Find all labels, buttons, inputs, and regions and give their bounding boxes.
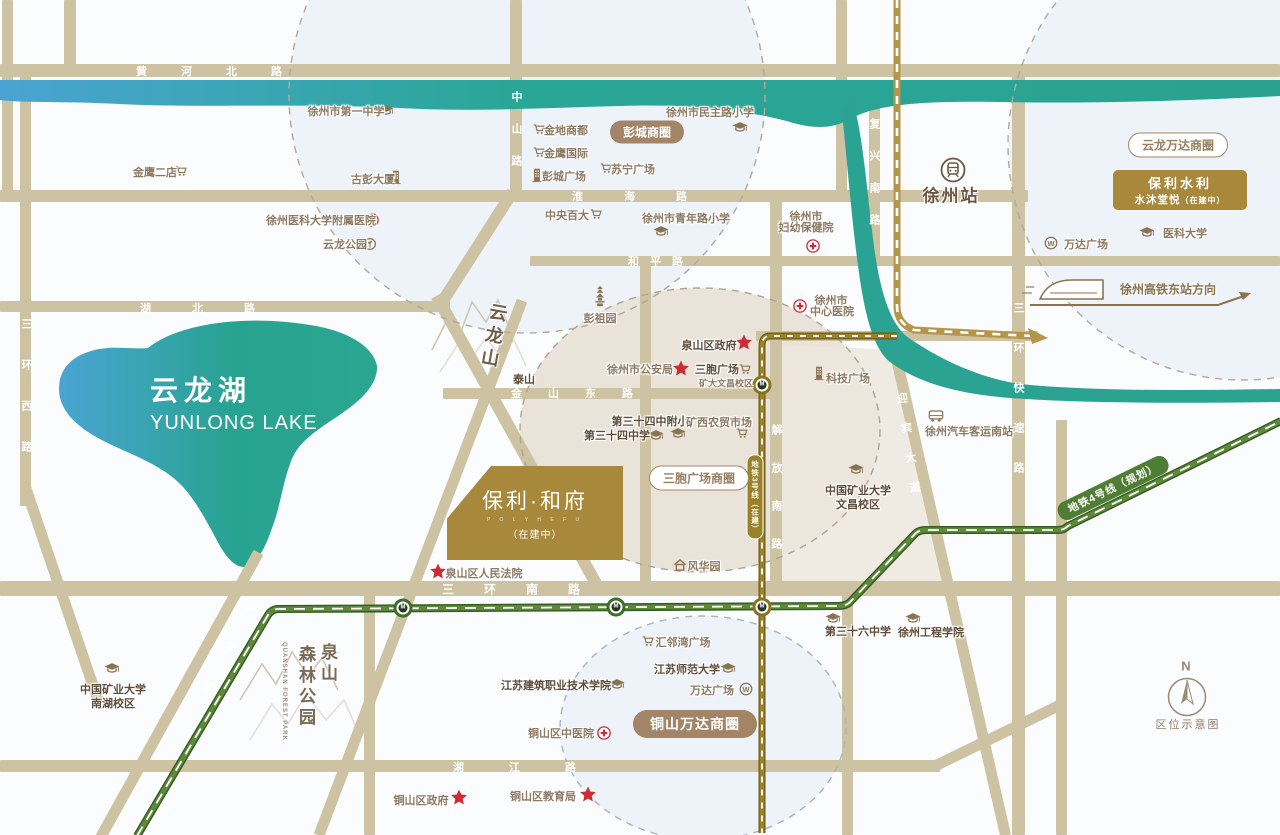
poi-label: 汇邻湾广场 (656, 634, 711, 650)
poi-label: 徐州汽车客运南站 (925, 423, 1013, 439)
school-icon (721, 662, 736, 674)
poi-label: 徐州市公安局 (607, 361, 673, 377)
poi-label: 万达广场 (1064, 236, 1108, 252)
poi-label: 南湖校区 (91, 695, 135, 711)
metro-station-icon: M (753, 598, 772, 617)
road-label: 三环快速路 (1010, 302, 1026, 502)
yunlong-lake-label: 云龙湖 YUNLONG LAKE (150, 369, 318, 435)
hospital-icon (793, 299, 807, 313)
school-icon (105, 662, 120, 674)
poi-label: 万达广场 (690, 682, 734, 698)
wanda-icon: W (739, 682, 753, 696)
project-poly-shuili: 保利水利 水沐堂悦（在建中） (1113, 170, 1247, 210)
svg-text:W: W (1047, 239, 1054, 248)
poi-label: 江苏建筑职业技术学院 (501, 677, 611, 693)
poi-label: 云龙公园 (323, 236, 367, 252)
compass-north-label: N (1181, 659, 1190, 674)
road-label: 金山东路 (511, 385, 659, 401)
building-icon (814, 366, 824, 381)
district-circle-pengcheng (289, 0, 765, 333)
road-label: 黄河北路 (136, 63, 316, 79)
cart-icon (739, 363, 751, 375)
road-label: 淮海路 (572, 188, 728, 204)
business-circle-badge: 云龙万达商圈 (1128, 133, 1228, 158)
road-segment (836, 0, 847, 196)
poi-label: 苏宁广场 (611, 161, 655, 177)
xuzhou-station-label: 徐州站 (923, 182, 980, 207)
poi-label: 江苏师范大学 (654, 661, 720, 677)
poi-label: 中心医院 (810, 303, 854, 319)
poly-shuili-line1: 保利水利 (1148, 173, 1212, 192)
road-label: 三环南路 (442, 581, 610, 598)
poly-shuili-line2: 水沐堂悦（在建中） (1135, 192, 1226, 207)
poi-label: 古彭大厦 (351, 171, 395, 187)
map-caption: 区位示意图 (1156, 716, 1221, 732)
poi-label: 中央百大 (545, 207, 589, 223)
poi-label: 三胞广场 (695, 361, 739, 377)
poi-label: 妇幼保健院 (779, 219, 834, 235)
yunlong-lake (59, 321, 377, 567)
metro-logo: M (399, 604, 408, 613)
pagoda-icon (594, 286, 607, 307)
poly-shuili-status: （在建中） (1181, 196, 1226, 205)
metro-station-icon: M (753, 376, 772, 395)
poi-label: 铜山区中医院 (528, 725, 594, 741)
poi-label: 彭城广场 (542, 168, 586, 184)
project-latin: P O L Y H E F U (487, 517, 583, 523)
metro3-label: 地铁3号线（在建） (747, 454, 764, 539)
school-icon (1140, 226, 1155, 238)
hospital-icon (597, 726, 611, 740)
business-circle-badge: 彭城商圈 (610, 121, 684, 144)
star-icon (673, 361, 689, 376)
star-icon (451, 790, 467, 805)
business-circle-badge: 三胞广场商圈 (649, 466, 749, 491)
hospital-icon (806, 239, 820, 253)
poi-label: 金地商都 (544, 122, 588, 138)
poi-label: 彭祖园 (584, 310, 617, 326)
compass-icon (1164, 674, 1210, 720)
poi-label: 文昌校区 (836, 496, 880, 512)
cart-icon (642, 635, 654, 647)
metro-station-icon: M (607, 598, 626, 617)
school-icon (654, 225, 669, 237)
road-label: 三环西路 (18, 318, 34, 482)
road-label: 解放南路 (768, 424, 784, 576)
road-label: 湘江路 (453, 759, 621, 775)
wanda-icon: W (1044, 236, 1058, 250)
poi-label: 泉山区政府 (682, 337, 737, 353)
poi-label: 科技广场 (826, 370, 870, 386)
poi-label: 泉山区人民法院 (446, 565, 523, 581)
road-label: 复兴南路 (866, 118, 882, 246)
road-segment (1056, 420, 1067, 835)
poi-label: 泰山 (513, 371, 535, 387)
poi-label: 矿西农贸市场 (686, 414, 752, 430)
poi-label: 风华园 (688, 558, 721, 574)
bus-icon (929, 409, 944, 423)
road-label: 和平路 (628, 253, 694, 269)
poi-label: 矿大文昌校区 (699, 377, 753, 390)
quanshan-label-en: QUANSHAN FOREST PARK (281, 642, 287, 741)
star-icon (580, 787, 596, 802)
poi-label: 徐州医科大学附属医院 (266, 212, 376, 228)
school-icon (849, 463, 864, 475)
star-icon (736, 335, 752, 350)
poi-label: 徐州市民主路小学 (666, 104, 754, 120)
quanshan-label-1: 泉山 (315, 643, 340, 685)
poi-label: 第三十六中学 (825, 623, 891, 639)
road-segment (756, 331, 1038, 341)
lake-name-zh: 云龙湖 (150, 369, 318, 409)
poi-label: 金鹰国际 (544, 145, 588, 161)
metro-logo: M (758, 381, 767, 390)
school-icon (610, 678, 625, 690)
school-icon (733, 121, 748, 133)
location-map: 保利·和府 P O L Y H E F U （在建中） 保利水利 水沐堂悦（在建… (0, 0, 1280, 835)
poi-label: 徐州工程学院 (898, 624, 964, 640)
poi-label: 铜山区政府 (394, 792, 449, 808)
poly-shuili-name: 水沐堂悦 (1135, 194, 1181, 206)
project-status: （在建中） (508, 526, 563, 541)
road-segment (64, 0, 76, 66)
house-icon (674, 559, 687, 571)
poi-label: 金鹰二店 (133, 164, 177, 180)
poi-label: 徐州市青年路小学 (642, 210, 730, 226)
business-circle-badge: 铜山万达商圈 (633, 710, 757, 738)
poi-label: 第三十四中学 (584, 427, 650, 443)
cart-icon (590, 208, 602, 220)
metro-logo: M (612, 603, 621, 612)
school-icon (906, 612, 921, 624)
project-name: 保利·和府 (482, 485, 588, 515)
poi-label: 铜山区教育局 (510, 788, 576, 804)
building-icon (532, 168, 542, 183)
school-icon (649, 429, 664, 441)
hsr-direction-label: 徐州高铁东站方向 (1120, 281, 1216, 298)
quanshan-label-2: 森林公园 (293, 645, 318, 729)
svg-text:W: W (742, 685, 749, 694)
poi-label: 徐州市第一中学 (308, 103, 385, 119)
road-label: 中山路 (508, 91, 524, 187)
road-label: 湖北路 (140, 300, 296, 316)
metro-station-icon: M (394, 599, 413, 618)
star-icon (430, 564, 446, 579)
metro-logo: M (758, 603, 767, 612)
train-station-icon (940, 157, 966, 183)
poi-label: 医科大学 (1163, 225, 1207, 241)
road-segment (2, 0, 13, 192)
lake-name-en: YUNLONG LAKE (150, 412, 318, 435)
